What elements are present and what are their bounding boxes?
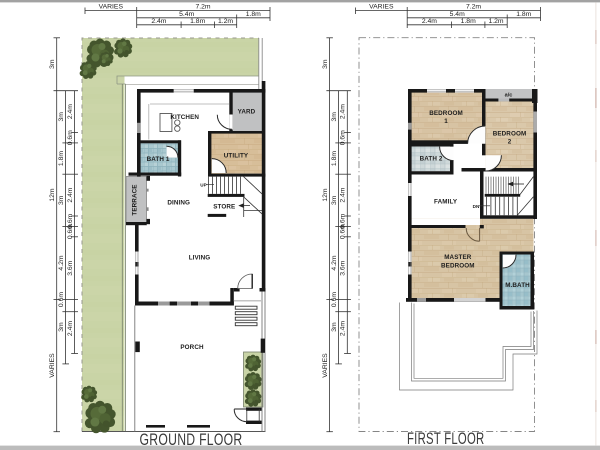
- svg-text:GROUND FLOOR: GROUND FLOOR: [140, 430, 243, 449]
- svg-text:0.6m: 0.6m: [67, 130, 74, 145]
- svg-text:2: 2: [508, 139, 512, 146]
- svg-text:FAMILY: FAMILY: [434, 198, 458, 205]
- svg-text:YARD: YARD: [238, 109, 256, 116]
- svg-text:4.2m: 4.2m: [58, 255, 65, 270]
- svg-text:BEDROOM: BEDROOM: [429, 110, 463, 117]
- svg-text:0.6m: 0.6m: [67, 224, 74, 239]
- svg-text:3m: 3m: [49, 59, 56, 69]
- svg-text:3.6m: 3.6m: [67, 260, 74, 275]
- svg-text:M.BATH: M.BATH: [505, 282, 530, 289]
- svg-text:1.2m: 1.2m: [218, 18, 233, 25]
- svg-text:3m: 3m: [58, 112, 65, 122]
- svg-text:UTILITY: UTILITY: [224, 153, 249, 160]
- svg-text:1: 1: [444, 118, 448, 125]
- svg-text:DN: DN: [473, 204, 480, 209]
- svg-text:KITCHEN: KITCHEN: [170, 114, 199, 121]
- svg-text:UP: UP: [200, 183, 206, 188]
- svg-text:BEDROOM: BEDROOM: [441, 263, 475, 270]
- svg-text:5.4m: 5.4m: [179, 11, 194, 18]
- svg-text:a/c: a/c: [505, 92, 513, 98]
- svg-text:MASTER: MASTER: [444, 254, 472, 261]
- svg-text:1.8m: 1.8m: [58, 151, 65, 166]
- svg-text:0.6m: 0.6m: [58, 292, 65, 307]
- svg-text:2.4m: 2.4m: [67, 187, 74, 202]
- svg-text:FIRST FLOOR: FIRST FLOOR: [407, 429, 485, 448]
- svg-text:TERRACE: TERRACE: [132, 184, 139, 215]
- svg-text:2.4m: 2.4m: [67, 321, 74, 336]
- svg-text:DINING: DINING: [167, 200, 190, 207]
- svg-text:7.2m: 7.2m: [195, 4, 210, 11]
- svg-text:1.8m: 1.8m: [246, 11, 261, 18]
- svg-text:PORCH: PORCH: [180, 344, 204, 351]
- svg-text:VARIES: VARIES: [99, 4, 124, 11]
- svg-text:3m: 3m: [58, 322, 65, 332]
- svg-text:BATH 1: BATH 1: [147, 156, 170, 163]
- svg-text:2.4m: 2.4m: [67, 104, 74, 119]
- svg-text:12m: 12m: [49, 188, 56, 202]
- svg-text:STORE: STORE: [213, 204, 235, 211]
- svg-text:VARIES: VARIES: [49, 353, 56, 378]
- svg-text:1.8m: 1.8m: [190, 18, 205, 25]
- svg-text:LIVING: LIVING: [189, 255, 211, 262]
- svg-text:3m: 3m: [58, 195, 65, 205]
- svg-text:BATH 2: BATH 2: [420, 156, 443, 163]
- svg-text:BEDROOM: BEDROOM: [493, 131, 527, 138]
- svg-text:2.4m: 2.4m: [151, 18, 166, 25]
